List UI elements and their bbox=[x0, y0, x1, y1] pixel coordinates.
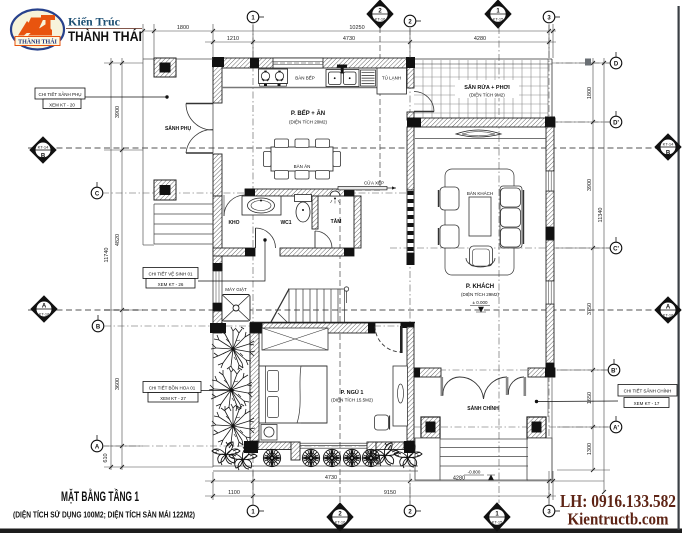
svg-text:P. KHÁCH: P. KHÁCH bbox=[466, 283, 494, 290]
svg-text:B: B bbox=[666, 151, 671, 157]
svg-text:1300: 1300 bbox=[587, 443, 593, 455]
svg-text:CHI TIẾT SẢNH CHÍNH: CHI TIẾT SẢNH CHÍNH bbox=[624, 388, 672, 394]
svg-text:MẶT BẰNG TẦNG 1: MẶT BẰNG TẦNG 1 bbox=[61, 487, 139, 504]
svg-text:3900: 3900 bbox=[115, 106, 121, 118]
svg-text:THÀNH: THÀNH bbox=[68, 28, 109, 44]
svg-text:P. BẾP + ĂN: P. BẾP + ĂN bbox=[291, 110, 325, 117]
svg-text:C': C' bbox=[613, 247, 619, 253]
svg-text:CHI TIẾT VỆ SINH 01: CHI TIẾT VỆ SINH 01 bbox=[148, 269, 193, 276]
svg-text:3600: 3600 bbox=[115, 378, 121, 390]
svg-text:KT-14: KT-14 bbox=[663, 142, 674, 147]
svg-text:(DIỆN TÍCH 9M2): (DIỆN TÍCH 9M2) bbox=[469, 91, 505, 98]
svg-text:WC1: WC1 bbox=[280, 220, 291, 226]
svg-text:1800: 1800 bbox=[587, 87, 593, 99]
svg-text:TẮM: TẮM bbox=[331, 217, 342, 225]
svg-text:KT-16: KT-16 bbox=[375, 17, 386, 22]
svg-text:(DIỆN TÍCH 15.5M2): (DIỆN TÍCH 15.5M2) bbox=[331, 396, 373, 403]
svg-text:Kientructb.com: Kientructb.com bbox=[568, 510, 669, 529]
svg-text:BÀN ĂN: BÀN ĂN bbox=[294, 163, 311, 169]
svg-text:Kiến Trúc: Kiến Trúc bbox=[68, 15, 121, 29]
svg-text:KT-16: KT-16 bbox=[335, 520, 346, 525]
svg-text:(DIỆN TÍCH 20M2): (DIỆN TÍCH 20M2) bbox=[289, 118, 327, 125]
svg-text:MÁY GIẶT: MÁY GIẶT bbox=[225, 286, 247, 292]
svg-text:1100: 1100 bbox=[228, 490, 240, 496]
svg-text:CHI TIẾT SẢNH PHỤ: CHI TIẾT SẢNH PHỤ bbox=[38, 91, 81, 97]
svg-text:4730: 4730 bbox=[343, 36, 355, 42]
svg-text:KHO: KHO bbox=[228, 220, 239, 226]
svg-text:A: A bbox=[42, 304, 47, 310]
svg-text:XEM KT - 20: XEM KT - 20 bbox=[49, 102, 75, 107]
svg-text:11340: 11340 bbox=[598, 208, 604, 223]
svg-text:KT-15: KT-15 bbox=[492, 520, 503, 525]
svg-text:XEM KT - 27: XEM KT - 27 bbox=[160, 396, 186, 401]
svg-text:B: B bbox=[96, 325, 101, 331]
svg-text:-0.800: -0.800 bbox=[468, 470, 481, 475]
svg-text:D: D bbox=[614, 62, 619, 68]
svg-text:3900: 3900 bbox=[587, 179, 593, 191]
svg-text:CỬA XẾP: CỬA XẾP bbox=[364, 180, 384, 186]
svg-text:TỦ LẠNH: TỦ LẠNH bbox=[382, 75, 401, 81]
svg-text:B': B' bbox=[611, 369, 617, 375]
svg-text:XEM KT - 17: XEM KT - 17 bbox=[634, 401, 660, 406]
svg-text:A: A bbox=[666, 305, 671, 311]
svg-text:SẢNH CHÍNH: SẢNH CHÍNH bbox=[467, 404, 499, 412]
svg-text:P. NGỦ 1: P. NGỦ 1 bbox=[341, 389, 364, 396]
svg-text:SẢNH PHỤ: SẢNH PHỤ bbox=[165, 125, 192, 132]
svg-text:4280: 4280 bbox=[453, 476, 465, 482]
svg-text:1800: 1800 bbox=[177, 25, 189, 31]
svg-text:XEM KT - 26: XEM KT - 26 bbox=[158, 282, 184, 287]
svg-text:610: 610 bbox=[103, 453, 109, 462]
svg-text:C: C bbox=[95, 192, 100, 198]
svg-text:4280: 4280 bbox=[474, 36, 486, 42]
svg-text:D': D' bbox=[613, 121, 619, 127]
svg-text:THÀNH THÁI: THÀNH THÁI bbox=[18, 38, 57, 46]
svg-text:(DIỆN TÍCH SỬ DỤNG 100M2; DIỆN: (DIỆN TÍCH SỬ DỤNG 100M2; DIỆN TÍCH SÀN … bbox=[13, 511, 195, 520]
svg-text:10250: 10250 bbox=[349, 25, 364, 31]
svg-text:4820: 4820 bbox=[115, 234, 121, 246]
svg-text:1210: 1210 bbox=[227, 36, 239, 42]
svg-text:SÂN RỬA + PHƠI: SÂN RỬA + PHƠI bbox=[464, 84, 510, 91]
svg-text:(DIỆN TÍCH 29M2): (DIỆN TÍCH 29M2) bbox=[461, 290, 499, 297]
svg-text:4730: 4730 bbox=[325, 475, 337, 481]
svg-text:KT-18: KT-18 bbox=[663, 313, 674, 318]
svg-text:1650: 1650 bbox=[587, 392, 593, 404]
svg-text:BÀN BẾP: BÀN BẾP bbox=[295, 75, 315, 81]
svg-text:9150: 9150 bbox=[384, 490, 396, 496]
svg-text:LH: 0916.133.582: LH: 0916.133.582 bbox=[560, 491, 676, 511]
svg-text:A': A' bbox=[613, 426, 619, 432]
svg-text:KT-18: KT-18 bbox=[39, 312, 50, 317]
svg-text:3750: 3750 bbox=[587, 303, 593, 315]
svg-text:11740: 11740 bbox=[104, 248, 110, 263]
svg-text:THÁI: THÁI bbox=[113, 28, 142, 44]
svg-text:A: A bbox=[95, 445, 100, 451]
svg-text:KT-14: KT-14 bbox=[38, 145, 49, 150]
svg-text:B: B bbox=[41, 154, 46, 160]
svg-text:BÀN KHÁCH: BÀN KHÁCH bbox=[467, 190, 493, 196]
svg-text:CHI TIẾT BỒN HOA 01: CHI TIẾT BỒN HOA 01 bbox=[149, 384, 196, 390]
svg-text:KT-15: KT-15 bbox=[493, 17, 504, 22]
svg-text:± 0.000: ± 0.000 bbox=[473, 300, 488, 305]
